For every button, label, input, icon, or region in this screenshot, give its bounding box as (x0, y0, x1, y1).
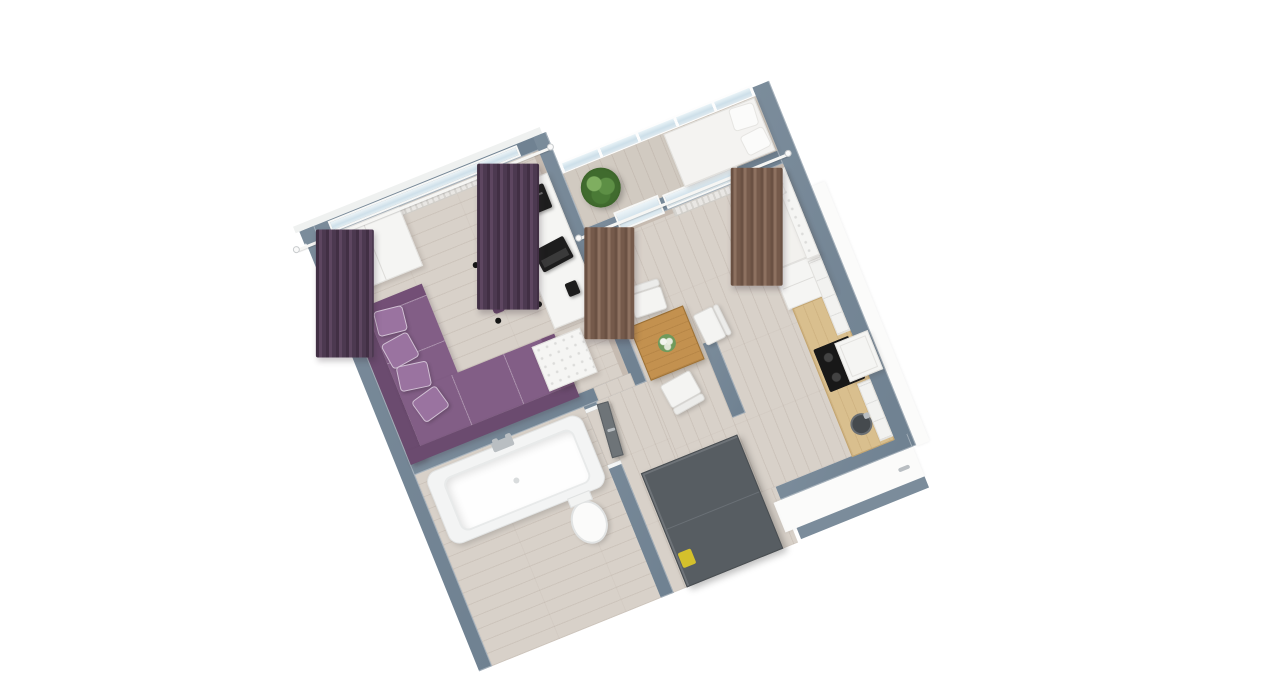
curtain-living-right (477, 164, 539, 310)
curtain-kitchen-right (731, 168, 783, 286)
chair-caster-3 (494, 317, 502, 325)
door-handle (607, 427, 616, 432)
floorplan (301, 44, 943, 672)
curtain-kitchen-left (584, 227, 634, 339)
hood-edge (839, 335, 878, 377)
curtain-living-left (316, 229, 374, 357)
wardrobe-hall-split (666, 491, 759, 529)
page-background (0, 0, 1280, 533)
